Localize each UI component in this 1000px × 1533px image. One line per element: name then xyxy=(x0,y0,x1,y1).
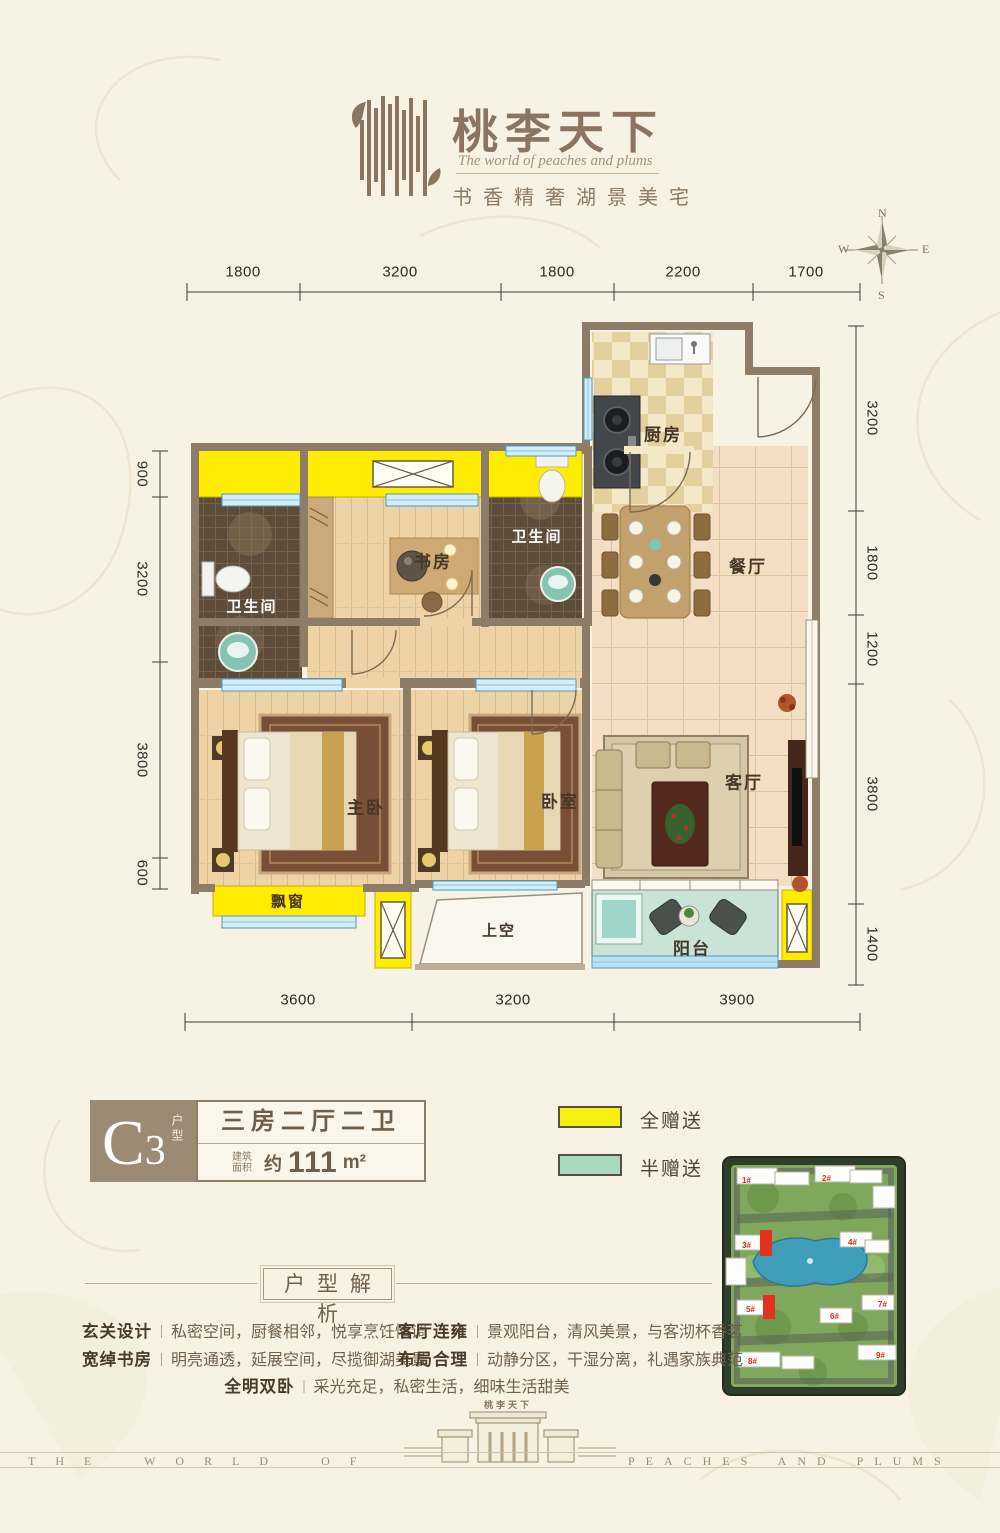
dim-bottom-2: 3200 xyxy=(495,992,530,1009)
siteplan-bldg-6: 6# xyxy=(830,1312,839,1321)
floorplan-poster: 桃李天下 The world of peaches and plums 书香精奢… xyxy=(0,0,1000,1533)
dim-left-2: 3200 xyxy=(134,561,151,596)
analysis-title-frame: 户型解析 xyxy=(263,1268,392,1300)
separator xyxy=(161,1353,162,1366)
dim-top-5: 1700 xyxy=(788,264,823,281)
analysis-item-1-label: 玄关设计 xyxy=(82,1323,152,1341)
siteplan-bldg-1: 1# xyxy=(742,1176,751,1185)
siteplan-bldg-8: 8# xyxy=(748,1357,757,1366)
siteplan-bldg-7: 7# xyxy=(878,1300,887,1309)
siteplan-bldg-3: 3# xyxy=(742,1241,751,1250)
dim-right-2: 1800 xyxy=(864,545,881,580)
siteplan-bldg-4: 4# xyxy=(848,1238,857,1247)
footer-gate-title: 桃李天下 xyxy=(484,1398,532,1411)
unit-code-box: C3 户型 xyxy=(90,1100,196,1182)
separator xyxy=(303,1380,304,1393)
room-label-bedroom: 卧室 xyxy=(541,788,579,813)
dim-top-1: 1800 xyxy=(225,264,260,281)
analysis-item-5: 全明双卧采光充足，私密生活，细味生活甜美 xyxy=(224,1373,569,1397)
dim-top-2: 3200 xyxy=(382,264,417,281)
legend-label-full-gift: 全赠送 xyxy=(640,1106,703,1133)
unit-area-approx: 约 xyxy=(264,1150,282,1176)
entrance-gate-illustration xyxy=(404,1412,616,1462)
analysis-rule-right xyxy=(396,1283,712,1284)
analysis-item-2-label: 宽绰书房 xyxy=(82,1351,152,1369)
dim-bottom-1: 3600 xyxy=(280,992,315,1009)
unit-area-unit: m² xyxy=(343,1152,366,1174)
analysis-item-5-label: 全明双卧 xyxy=(224,1378,294,1396)
room-label-void: 上空 xyxy=(482,920,516,941)
room-label-balcony: 阳台 xyxy=(673,935,711,960)
siteplan-bldg-5: 5# xyxy=(746,1305,755,1314)
dim-bottom-3: 3900 xyxy=(719,992,754,1009)
dim-top-4: 2200 xyxy=(665,264,700,281)
analysis-item-4-text: 动静分区，干湿分离，礼遇家族典范 xyxy=(487,1352,743,1369)
footer-rule-top xyxy=(0,1452,1000,1453)
room-label-master-bedroom: 主卧 xyxy=(347,794,385,819)
room-label-study: 书房 xyxy=(414,548,452,573)
dim-right-5: 1400 xyxy=(864,926,881,961)
unit-area-row: 建筑面积 约 111 m² xyxy=(198,1144,424,1181)
unit-code-label: 户型 xyxy=(169,1114,186,1144)
siteplan-bldg-9: 9# xyxy=(876,1351,885,1360)
unit-layout: 三房二厅二卫 xyxy=(198,1102,424,1144)
room-label-bath-main: 卫生间 xyxy=(226,596,277,617)
dim-top-3: 1800 xyxy=(539,264,574,281)
legend-label-half-gift: 半赠送 xyxy=(640,1154,703,1181)
unit-area-label: 建筑面积 xyxy=(232,1152,258,1174)
separator xyxy=(477,1353,478,1366)
dim-right-4: 3800 xyxy=(864,776,881,811)
unit-code: C3 xyxy=(102,1100,166,1194)
brand-subtitle: The world of peaches and plums xyxy=(456,153,659,174)
compass-west-label: W xyxy=(838,242,849,257)
dim-right-3: 1200 xyxy=(864,631,881,666)
room-label-living: 客厅 xyxy=(725,769,763,794)
analysis-item-1: 玄关设计私密空间，厨餐相邻，悦享烹饪情调 xyxy=(82,1318,427,1342)
dim-right-1: 3200 xyxy=(864,400,881,435)
separator xyxy=(161,1325,162,1338)
brand-logo-icon xyxy=(352,96,441,196)
room-label-dining: 餐厅 xyxy=(729,553,767,578)
compass-south-label: S xyxy=(878,288,885,303)
footer-right-text: PEACHES AND PLUMS xyxy=(628,1454,952,1469)
room-label-bath-second: 卫生间 xyxy=(511,526,562,547)
dining-furniture xyxy=(602,506,710,618)
analysis-item-4: 布局合理动静分区，干湿分离，礼遇家族典范 xyxy=(398,1346,743,1370)
footer-left-text: THE WORLD OF xyxy=(28,1454,376,1469)
unit-area-value: 111 xyxy=(288,1146,338,1180)
brand-tagline: 书香精奢湖景美宅 xyxy=(452,181,700,210)
separator xyxy=(477,1325,478,1338)
analysis-item-2-text: 明亮通透，延展空间，尽揽御湖美景 xyxy=(171,1352,427,1369)
room-label-kitchen: 厨房 xyxy=(644,421,682,446)
room-label-bay-window: 飘窗 xyxy=(271,891,305,912)
dim-left-4: 600 xyxy=(134,860,151,887)
analysis-item-4-label: 布局合理 xyxy=(398,1351,468,1369)
legend-swatch-half-gift xyxy=(558,1154,622,1176)
analysis-item-1-text: 私密空间，厨餐相邻，悦享烹饪情调 xyxy=(171,1324,427,1341)
analysis-item-3-label: 客厅连雍 xyxy=(398,1323,468,1341)
legend-swatch-full-gift xyxy=(558,1106,622,1128)
unit-info-box: 三房二厅二卫 建筑面积 约 111 m² xyxy=(196,1100,426,1182)
analysis-item-3: 客厅连雍景观阳台，清风美景，与客沏杯香茗 xyxy=(398,1318,743,1342)
dim-left-3: 3800 xyxy=(134,742,151,777)
analysis-item-5-text: 采光充足，私密生活，细味生活甜美 xyxy=(313,1379,569,1396)
compass-east-label: E xyxy=(922,242,929,257)
analysis-rule-left xyxy=(85,1283,257,1284)
siteplan-bldg-2: 2# xyxy=(822,1174,831,1183)
compass-rose-icon xyxy=(846,216,918,284)
analysis-item-2: 宽绰书房明亮通透，延展空间，尽揽御湖美景 xyxy=(82,1346,427,1370)
compass-north-label: N xyxy=(878,206,887,221)
dim-left-1: 900 xyxy=(134,461,151,488)
analysis-item-3-text: 景观阳台，清风美景，与客沏杯香茗 xyxy=(487,1324,743,1341)
